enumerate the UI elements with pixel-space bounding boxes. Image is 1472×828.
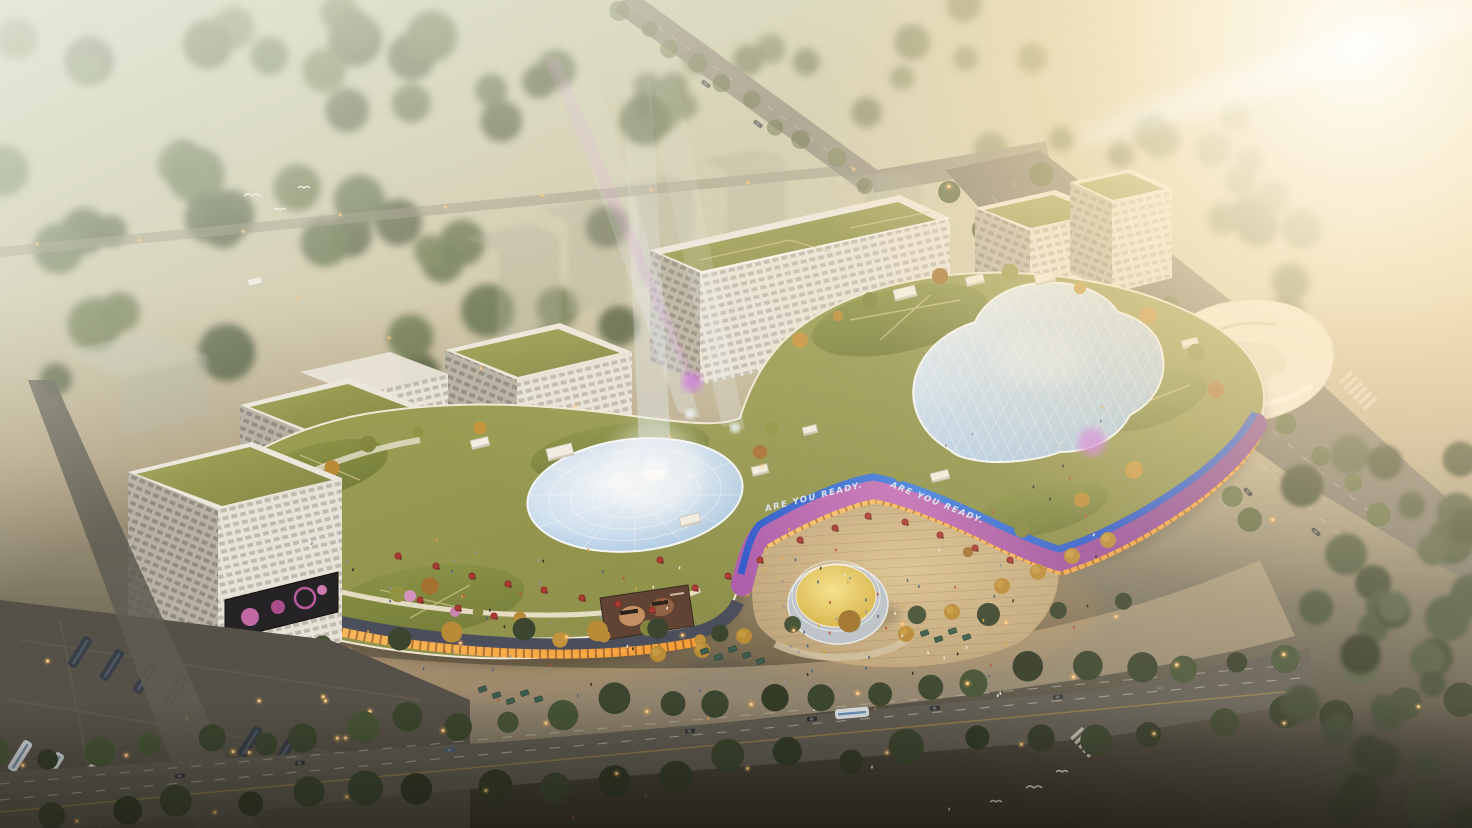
- rendering-canvas: ARE YOU READY. ARE YOU READY.: [0, 0, 1472, 828]
- bottom-vignette: [0, 700, 1472, 828]
- aerial-rendering: ARE YOU READY. ARE YOU READY.: [0, 0, 1472, 828]
